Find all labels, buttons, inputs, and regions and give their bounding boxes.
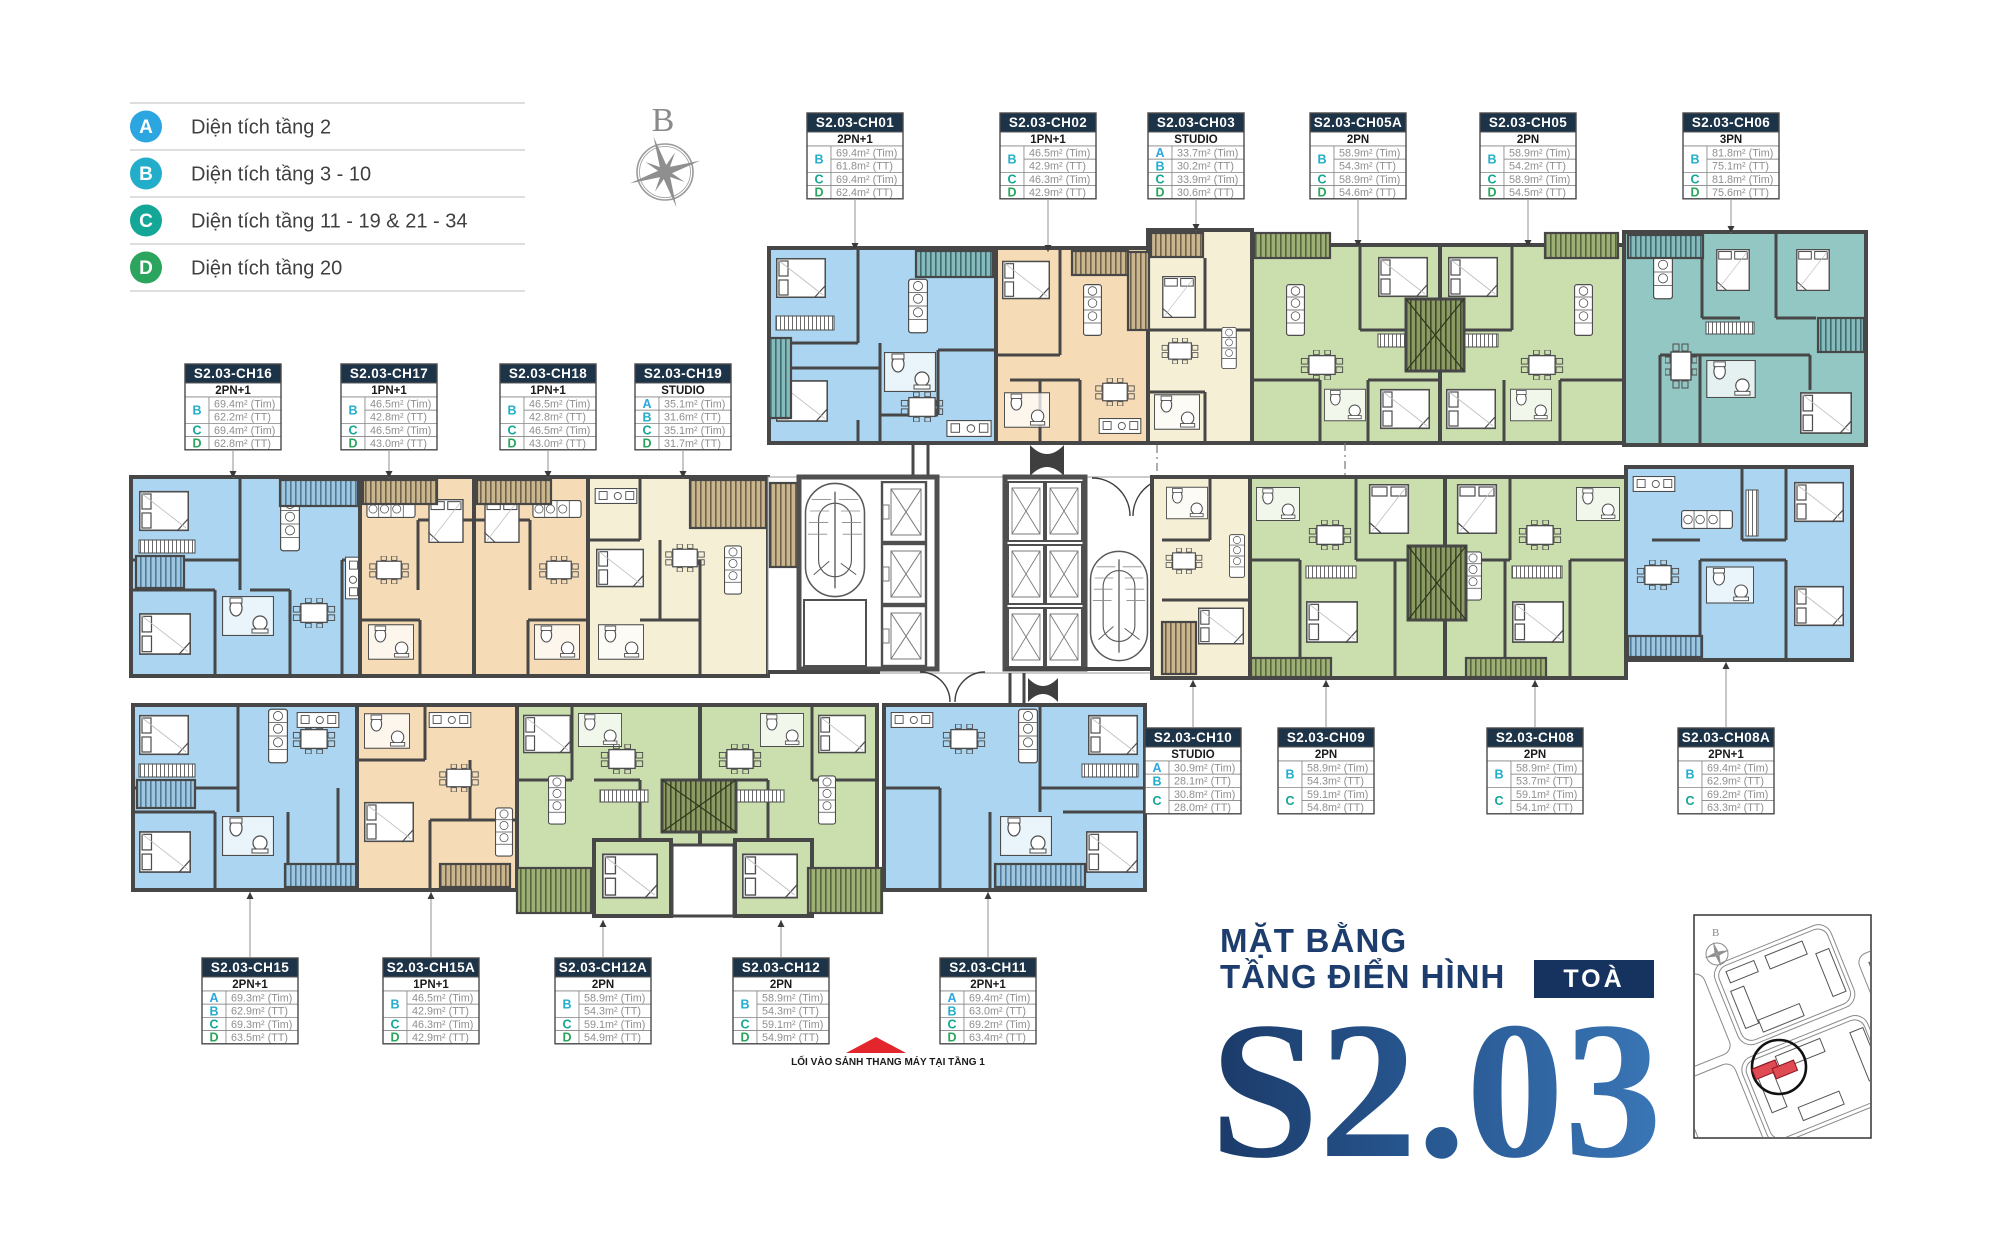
svg-text:54.3m² (TT): 54.3m² (TT)	[1339, 161, 1396, 173]
svg-text:46.5m² (Tim): 46.5m² (Tim)	[412, 993, 473, 1005]
svg-text:54.8m² (TT): 54.8m² (TT)	[1307, 802, 1364, 814]
svg-text:62.8m² (TT): 62.8m² (TT)	[214, 438, 271, 450]
svg-text:54.1m² (TT): 54.1m² (TT)	[1516, 802, 1573, 814]
svg-text:S2.03: S2.03	[1210, 982, 1662, 1199]
svg-text:62.4m² (TT): 62.4m² (TT)	[836, 187, 893, 199]
svg-text:63.3m² (TT): 63.3m² (TT)	[1707, 802, 1764, 814]
svg-text:43.0m² (TT): 43.0m² (TT)	[370, 438, 427, 450]
svg-text:2PN: 2PN	[1524, 749, 1546, 761]
svg-text:69.4m² (Tim): 69.4m² (Tim)	[214, 399, 275, 411]
svg-text:B: B	[507, 404, 516, 418]
svg-text:2PN+1: 2PN+1	[1708, 749, 1744, 761]
svg-text:B: B	[562, 998, 571, 1012]
svg-text:54.3m² (TT): 54.3m² (TT)	[1307, 776, 1364, 788]
svg-text:2PN+1: 2PN+1	[837, 134, 873, 146]
svg-text:S2.03-CH06: S2.03-CH06	[1692, 115, 1770, 130]
svg-text:Diện tích tầng 11 - 19 & 21 -: Diện tích tầng 11 - 19 & 21 - 34	[191, 211, 467, 233]
svg-text:58.9m² (Tim): 58.9m² (Tim)	[1307, 763, 1368, 775]
svg-text:C: C	[1487, 173, 1496, 187]
svg-text:58.9m² (Tim): 58.9m² (Tim)	[1509, 174, 1570, 186]
svg-text:S2.03-CH17: S2.03-CH17	[350, 366, 428, 381]
svg-text:D: D	[209, 1031, 218, 1045]
svg-text:43.0m² (TT): 43.0m² (TT)	[529, 438, 586, 450]
svg-text:69.4m² (Tim): 69.4m² (Tim)	[969, 993, 1030, 1005]
svg-text:2PN: 2PN	[1347, 134, 1369, 146]
svg-text:C: C	[1494, 794, 1503, 808]
svg-text:46.5m² (Tim): 46.5m² (Tim)	[529, 425, 590, 437]
svg-text:C: C	[390, 1018, 399, 1032]
svg-text:69.3m² (Tim): 69.3m² (Tim)	[231, 1019, 292, 1031]
svg-text:D: D	[348, 437, 357, 451]
svg-text:D: D	[740, 1031, 749, 1045]
svg-text:30.6m² (TT): 30.6m² (TT)	[1177, 187, 1234, 199]
svg-text:3PN: 3PN	[1720, 134, 1742, 146]
svg-text:S2.03-CH08: S2.03-CH08	[1496, 730, 1574, 745]
svg-text:2PN: 2PN	[592, 979, 614, 991]
svg-text:58.9m² (Tim): 58.9m² (Tim)	[762, 993, 823, 1005]
svg-text:35.1m² (Tim): 35.1m² (Tim)	[664, 425, 725, 437]
svg-text:S2.03-CH11: S2.03-CH11	[949, 960, 1027, 975]
svg-text:B: B	[740, 998, 749, 1012]
svg-text:63.0m² (TT): 63.0m² (TT)	[969, 1006, 1026, 1018]
svg-text:S2.03-CH10: S2.03-CH10	[1154, 730, 1232, 745]
svg-text:B: B	[1007, 153, 1016, 167]
svg-text:B: B	[1685, 768, 1694, 782]
svg-text:54.3m² (TT): 54.3m² (TT)	[762, 1006, 819, 1018]
svg-text:S2.03-CH18: S2.03-CH18	[509, 366, 587, 381]
svg-text:30.2m² (TT): 30.2m² (TT)	[1177, 161, 1234, 173]
svg-text:46.3m² (Tim): 46.3m² (Tim)	[412, 1019, 473, 1031]
svg-text:S2.03-CH01: S2.03-CH01	[816, 115, 894, 130]
svg-text:S2.03-CH03: S2.03-CH03	[1157, 115, 1235, 130]
svg-text:1PN+1: 1PN+1	[371, 385, 407, 397]
svg-text:B: B	[139, 164, 153, 185]
svg-text:Diện tích tầng 2: Diện tích tầng 2	[191, 117, 331, 139]
svg-text:46.5m² (Tim): 46.5m² (Tim)	[370, 425, 431, 437]
svg-text:69.4m² (Tim): 69.4m² (Tim)	[1707, 763, 1768, 775]
svg-text:B: B	[1155, 159, 1164, 173]
svg-text:69.4m² (Tim): 69.4m² (Tim)	[214, 425, 275, 437]
svg-text:D: D	[1317, 186, 1326, 200]
svg-text:2PN: 2PN	[1315, 749, 1337, 761]
svg-text:2PN+1: 2PN+1	[970, 979, 1006, 991]
svg-text:1PN+1: 1PN+1	[1030, 134, 1066, 146]
svg-text:D: D	[1007, 186, 1016, 200]
svg-text:B: B	[1487, 153, 1496, 167]
svg-text:62.9m² (TT): 62.9m² (TT)	[231, 1006, 288, 1018]
svg-text:STUDIO: STUDIO	[661, 385, 705, 397]
svg-text:C: C	[562, 1018, 571, 1032]
svg-text:59.1m² (Tim): 59.1m² (Tim)	[1516, 789, 1577, 801]
svg-text:1PN+1: 1PN+1	[413, 979, 449, 991]
svg-text:S2.03-CH12A: S2.03-CH12A	[559, 960, 647, 975]
svg-text:B: B	[390, 998, 399, 1012]
svg-text:S2.03-CH09: S2.03-CH09	[1287, 730, 1365, 745]
svg-text:42.8m² (TT): 42.8m² (TT)	[529, 412, 586, 424]
svg-text:C: C	[507, 424, 516, 438]
svg-text:42.9m² (TT): 42.9m² (TT)	[412, 1032, 469, 1044]
svg-text:B: B	[652, 102, 675, 139]
svg-text:53.7m² (TT): 53.7m² (TT)	[1516, 776, 1573, 788]
svg-text:63.4m² (TT): 63.4m² (TT)	[969, 1032, 1026, 1044]
svg-text:D: D	[192, 437, 201, 451]
svg-text:Diện tích tầng 20: Diện tích tầng 20	[191, 258, 342, 280]
svg-text:C: C	[1152, 794, 1161, 808]
svg-text:59.1m² (Tim): 59.1m² (Tim)	[762, 1019, 823, 1031]
svg-text:S2.03-CH08A: S2.03-CH08A	[1682, 730, 1770, 745]
svg-text:54.9m² (TT): 54.9m² (TT)	[584, 1032, 641, 1044]
svg-text:C: C	[1317, 173, 1326, 187]
svg-text:54.9m² (TT): 54.9m² (TT)	[762, 1032, 819, 1044]
svg-text:63.5m² (TT): 63.5m² (TT)	[231, 1032, 288, 1044]
svg-text:42.8m² (TT): 42.8m² (TT)	[370, 412, 427, 424]
svg-text:D: D	[1487, 186, 1496, 200]
svg-text:A: A	[209, 991, 218, 1005]
svg-text:B: B	[1152, 774, 1161, 788]
svg-text:69.4m² (Tim): 69.4m² (Tim)	[836, 174, 897, 186]
svg-text:S2.03-CH05: S2.03-CH05	[1489, 115, 1567, 130]
svg-text:B: B	[1317, 153, 1326, 167]
svg-text:58.9m² (Tim): 58.9m² (Tim)	[1339, 148, 1400, 160]
svg-text:2PN: 2PN	[770, 979, 792, 991]
svg-text:D: D	[947, 1031, 956, 1045]
svg-text:28.0m² (TT): 28.0m² (TT)	[1174, 802, 1231, 814]
svg-text:54.2m² (TT): 54.2m² (TT)	[1509, 161, 1566, 173]
svg-text:B: B	[642, 410, 651, 424]
svg-text:46.3m² (Tim): 46.3m² (Tim)	[1029, 174, 1090, 186]
svg-text:MẶT BẰNG: MẶT BẰNG	[1220, 922, 1407, 959]
svg-text:28.1m² (TT): 28.1m² (TT)	[1174, 776, 1231, 788]
svg-text:42.9m² (TT): 42.9m² (TT)	[412, 1006, 469, 1018]
svg-text:S2.03-CH12: S2.03-CH12	[742, 960, 820, 975]
svg-text:61.8m² (TT): 61.8m² (TT)	[836, 161, 893, 173]
svg-text:C: C	[348, 424, 357, 438]
svg-text:C: C	[740, 1018, 749, 1032]
svg-text:81.8m² (Tim): 81.8m² (Tim)	[1712, 174, 1773, 186]
svg-text:33.9m² (Tim): 33.9m² (Tim)	[1177, 174, 1238, 186]
svg-text:S2.03-CH02: S2.03-CH02	[1009, 115, 1087, 130]
svg-text:S2.03-CH15: S2.03-CH15	[211, 960, 289, 975]
svg-text:A: A	[947, 991, 956, 1005]
svg-text:C: C	[1155, 173, 1164, 187]
svg-text:1PN+1: 1PN+1	[530, 385, 566, 397]
svg-text:B: B	[947, 1004, 956, 1018]
svg-text:69.2m² (Tim): 69.2m² (Tim)	[1707, 789, 1768, 801]
svg-text:58.9m² (Tim): 58.9m² (Tim)	[1509, 148, 1570, 160]
svg-text:C: C	[1285, 794, 1294, 808]
svg-text:59.1m² (Tim): 59.1m² (Tim)	[1307, 789, 1368, 801]
svg-text:59.1m² (Tim): 59.1m² (Tim)	[584, 1019, 645, 1031]
svg-text:D: D	[814, 186, 823, 200]
svg-text:D: D	[139, 258, 153, 279]
svg-text:B: B	[1494, 768, 1503, 782]
svg-text:69.4m² (Tim): 69.4m² (Tim)	[836, 148, 897, 160]
svg-text:2PN: 2PN	[1517, 134, 1539, 146]
svg-text:46.5m² (Tim): 46.5m² (Tim)	[529, 399, 590, 411]
svg-text:54.3m² (TT): 54.3m² (TT)	[584, 1006, 641, 1018]
svg-text:D: D	[390, 1031, 399, 1045]
svg-text:75.6m² (TT): 75.6m² (TT)	[1712, 187, 1769, 199]
svg-text:54.5m² (TT): 54.5m² (TT)	[1509, 187, 1566, 199]
svg-text:STUDIO: STUDIO	[1171, 749, 1215, 761]
svg-text:54.6m² (TT): 54.6m² (TT)	[1339, 187, 1396, 199]
svg-text:31.6m² (TT): 31.6m² (TT)	[664, 412, 721, 424]
svg-text:B: B	[348, 404, 357, 418]
svg-text:62.2m² (TT): 62.2m² (TT)	[214, 412, 271, 424]
svg-text:S2.03-CH05A: S2.03-CH05A	[1314, 115, 1402, 130]
svg-text:B: B	[1712, 927, 1719, 939]
svg-text:81.8m² (Tim): 81.8m² (Tim)	[1712, 148, 1773, 160]
svg-text:A: A	[1155, 146, 1164, 160]
svg-text:D: D	[1155, 186, 1164, 200]
svg-text:S2.03-CH16: S2.03-CH16	[194, 366, 272, 381]
svg-text:69.2m² (Tim): 69.2m² (Tim)	[969, 1019, 1030, 1031]
svg-text:B: B	[192, 404, 201, 418]
svg-text:D: D	[1690, 186, 1699, 200]
svg-text:42.9m² (TT): 42.9m² (TT)	[1029, 161, 1086, 173]
svg-text:B: B	[1690, 153, 1699, 167]
svg-text:69.3m² (Tim): 69.3m² (Tim)	[231, 993, 292, 1005]
svg-text:D: D	[507, 437, 516, 451]
svg-text:46.5m² (Tim): 46.5m² (Tim)	[370, 399, 431, 411]
svg-text:B: B	[814, 153, 823, 167]
svg-text:30.8m² (Tim): 30.8m² (Tim)	[1174, 789, 1235, 801]
svg-text:33.7m² (Tim): 33.7m² (Tim)	[1177, 148, 1238, 160]
svg-text:D: D	[562, 1031, 571, 1045]
svg-text:62.9m² (TT): 62.9m² (TT)	[1707, 776, 1764, 788]
svg-text:2PN+1: 2PN+1	[215, 385, 251, 397]
svg-text:C: C	[1007, 173, 1016, 187]
svg-text:30.9m² (Tim): 30.9m² (Tim)	[1174, 763, 1235, 775]
svg-text:58.9m² (Tim): 58.9m² (Tim)	[1339, 174, 1400, 186]
svg-text:A: A	[642, 397, 651, 411]
svg-text:46.5m² (Tim): 46.5m² (Tim)	[1029, 148, 1090, 160]
svg-text:2PN+1: 2PN+1	[232, 979, 268, 991]
svg-text:Diện tích tầng 3 - 10: Diện tích tầng 3 - 10	[191, 164, 371, 186]
svg-text:B: B	[209, 1004, 218, 1018]
svg-text:D: D	[642, 437, 651, 451]
svg-text:35.1m² (Tim): 35.1m² (Tim)	[664, 399, 725, 411]
svg-text:75.1m² (TT): 75.1m² (TT)	[1712, 161, 1769, 173]
svg-text:STUDIO: STUDIO	[1174, 134, 1218, 146]
svg-text:C: C	[209, 1018, 218, 1032]
svg-text:C: C	[642, 424, 651, 438]
svg-text:C: C	[1685, 794, 1694, 808]
svg-text:B: B	[1285, 768, 1294, 782]
svg-text:S2.03-CH19: S2.03-CH19	[644, 366, 722, 381]
svg-text:58.9m² (Tim): 58.9m² (Tim)	[1516, 763, 1577, 775]
svg-text:LỐI VÀO SẢNH THANG MÁY TẠI TẦN: LỐI VÀO SẢNH THANG MÁY TẠI TẦNG 1	[791, 1054, 985, 1068]
svg-text:58.9m² (Tim): 58.9m² (Tim)	[584, 993, 645, 1005]
svg-text:C: C	[1690, 173, 1699, 187]
svg-text:31.7m² (TT): 31.7m² (TT)	[664, 438, 721, 450]
svg-text:C: C	[139, 211, 153, 232]
svg-text:C: C	[814, 173, 823, 187]
svg-text:S2.03-CH15A: S2.03-CH15A	[387, 960, 475, 975]
svg-text:C: C	[947, 1018, 956, 1032]
svg-text:C: C	[192, 424, 201, 438]
svg-text:42.9m² (TT): 42.9m² (TT)	[1029, 187, 1086, 199]
svg-text:A: A	[139, 117, 153, 138]
svg-text:A: A	[1152, 761, 1161, 775]
